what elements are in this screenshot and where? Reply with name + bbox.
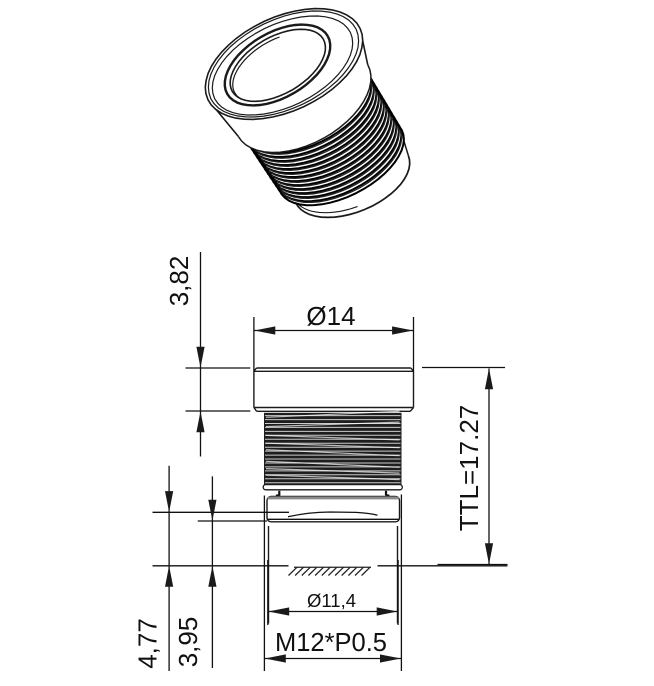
svg-text:3,82: 3,82 [164,256,194,307]
svg-text:TTL=17.27: TTL=17.27 [454,405,484,531]
svg-text:Ø14: Ø14 [306,301,355,331]
svg-text:4,77: 4,77 [133,618,163,669]
svg-text:3,95: 3,95 [173,617,203,668]
svg-text:M12*P0.5: M12*P0.5 [275,629,387,657]
svg-text:Ø11,4: Ø11,4 [307,590,356,611]
